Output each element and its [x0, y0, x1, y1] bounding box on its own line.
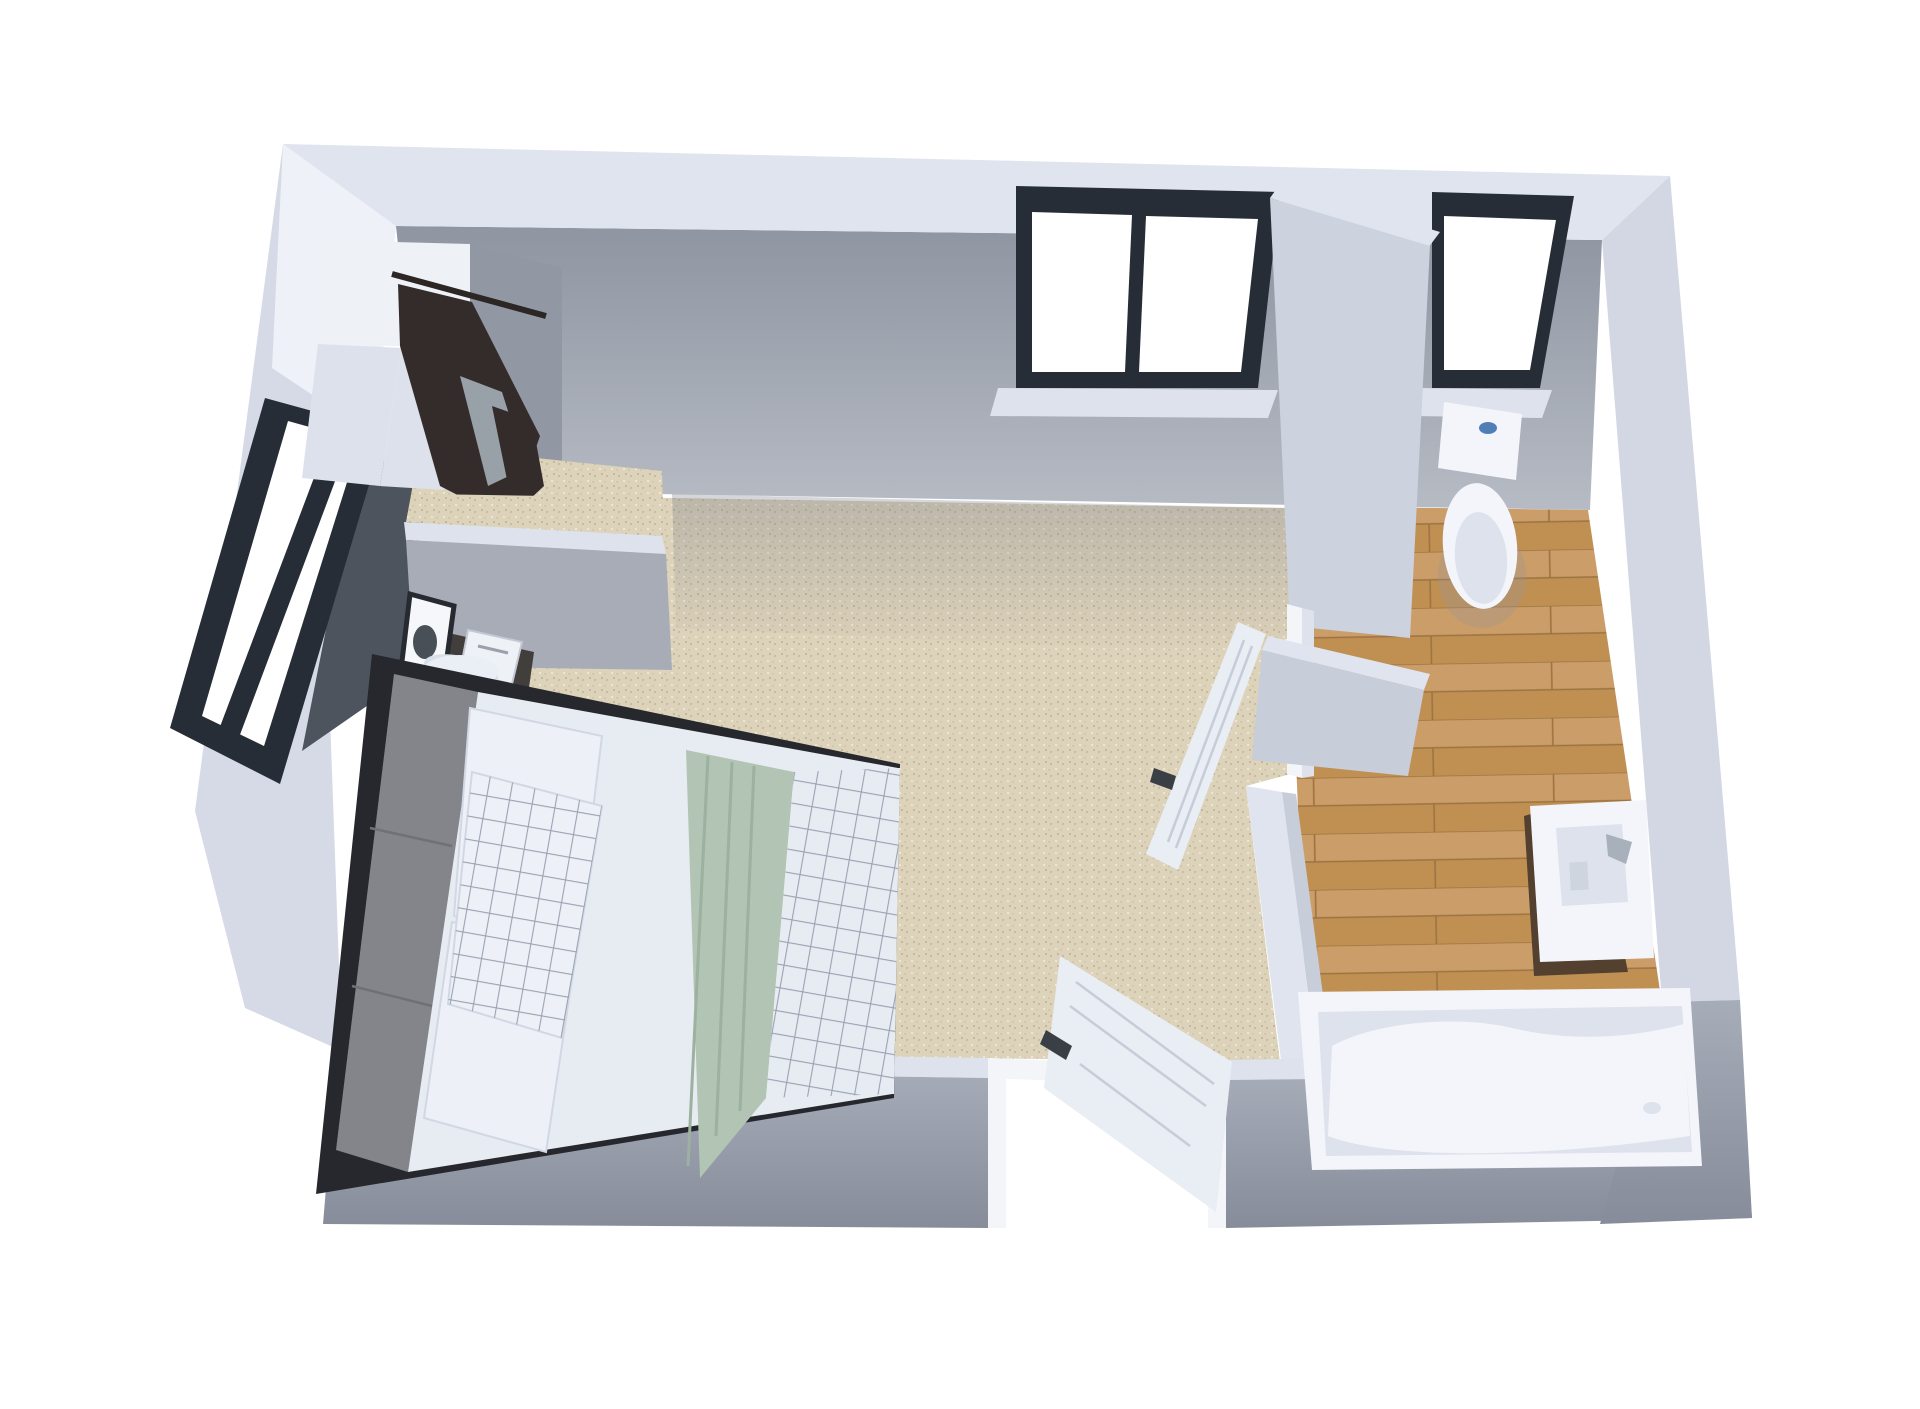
- wall-shadow-on-carpet: [672, 494, 1290, 656]
- bathtub-basin: [1328, 1022, 1690, 1154]
- toilet-flush-button: [1479, 422, 1497, 434]
- picture-photo: [413, 625, 437, 659]
- floor-plan-canvas: [40, 16, 1920, 1393]
- soap-dish: [1569, 862, 1588, 891]
- floor-plan-rendering: [40, 16, 1920, 1393]
- entry-door-jamb-left: [988, 1058, 1006, 1228]
- toilet-tank: [1438, 402, 1522, 480]
- vanity: [1524, 800, 1654, 976]
- bathtub-drain: [1643, 1102, 1661, 1114]
- vanity-sink-basin: [1556, 824, 1628, 906]
- window-glass-right: [1139, 216, 1258, 372]
- bathtub: [1298, 988, 1702, 1170]
- bedroom-window: [990, 186, 1280, 418]
- column-west-face: [1270, 198, 1430, 638]
- window-glass-left: [1032, 212, 1132, 372]
- window-sill: [990, 388, 1278, 418]
